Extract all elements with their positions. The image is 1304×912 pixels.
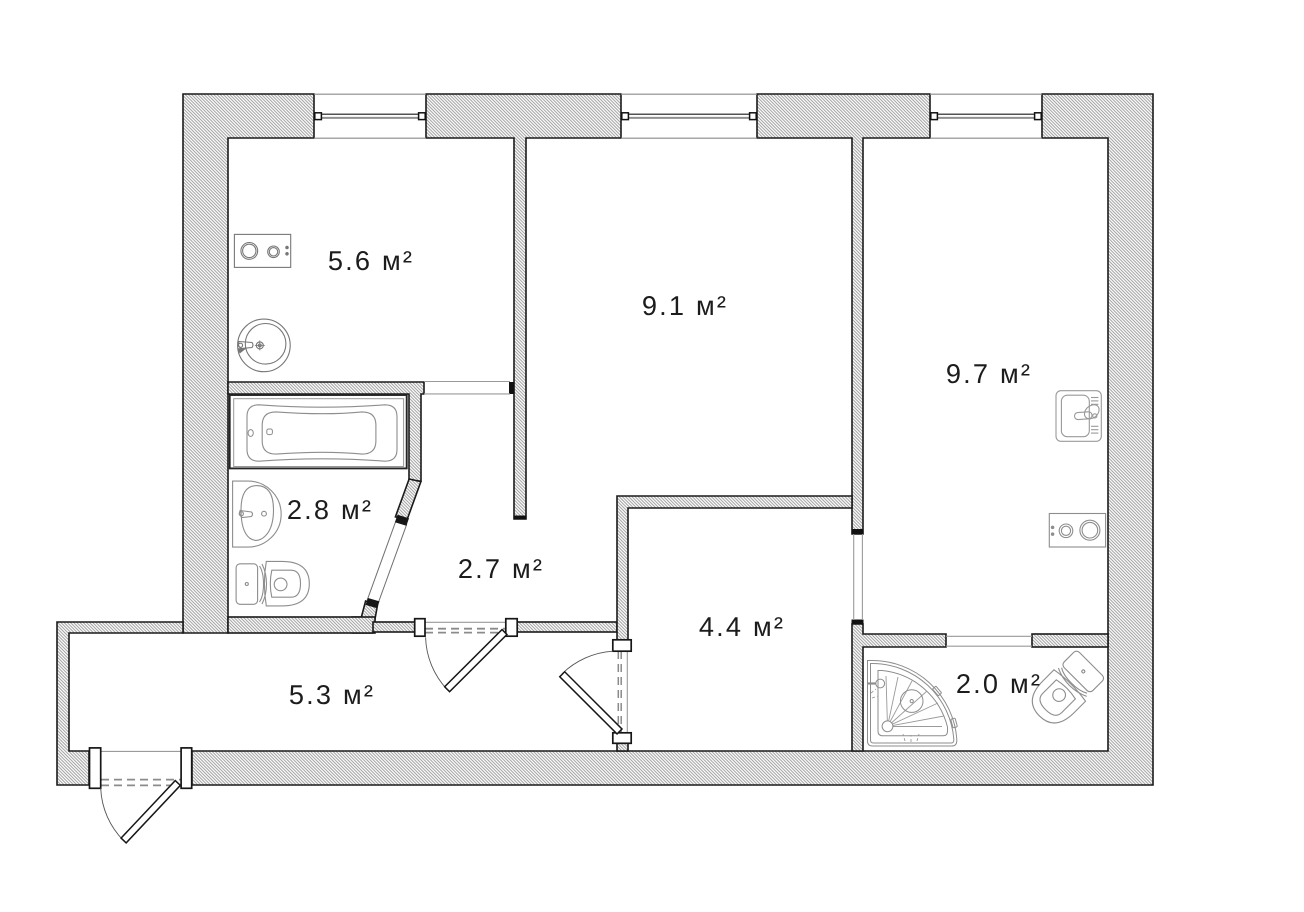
svg-text:5.3 м²: 5.3 м² [289, 679, 375, 710]
svg-text:5.6 м²: 5.6 м² [328, 245, 414, 276]
svg-text:2.0 м²: 2.0 м² [956, 668, 1042, 699]
svg-text:9.7 м²: 9.7 м² [946, 358, 1032, 389]
svg-text:2.8 м²: 2.8 м² [287, 494, 373, 525]
svg-text:2.7 м²: 2.7 м² [458, 553, 544, 584]
svg-text:9.1 м²: 9.1 м² [642, 290, 728, 321]
svg-text:4.4 м²: 4.4 м² [699, 611, 785, 642]
